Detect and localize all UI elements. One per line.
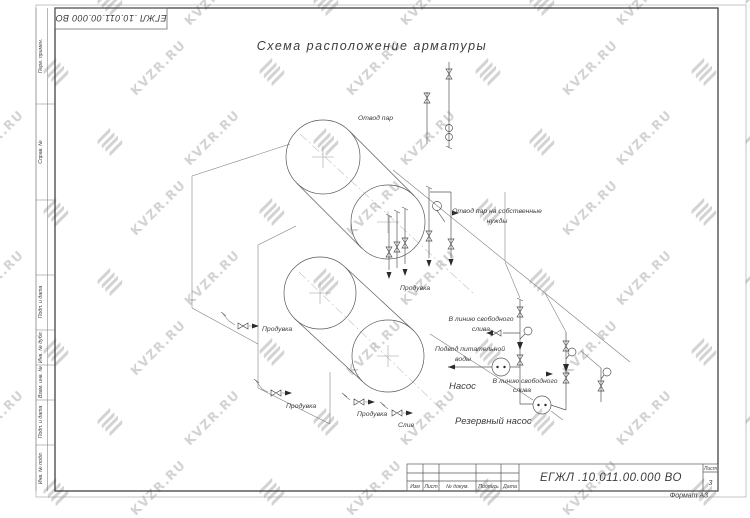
drawing-labels: Отвод пар Отвод пар на собственные нужды… [262,114,558,429]
label-blowdown-bottom1: Продувка [286,402,316,410]
stamp-label-inv-dubl: Инв. № дубл. [38,331,44,363]
sheet-borders [36,5,746,497]
stamp-label-sprav: Справ. № [38,140,44,164]
top-designation-text: ЕГЖЛ .10.011.00.000 ВО [55,13,166,23]
label-feedwater-line1: Подвод питательной [435,345,505,353]
check-valve-symbols [517,342,569,372]
stamp-label-perv-primen: Перв. примен. [38,39,44,73]
pump-symbols [492,358,551,414]
stamp-label-podp-data-1: Подп. и дата [38,286,44,319]
stamp-label-inv-podl: Инв. № подл. [38,452,44,484]
page-title: Схема расположение арматуры [257,39,488,53]
label-steam-own-needs-line2: нужды [487,217,508,225]
label-free-drain1-line1: В линию свободного [448,315,513,323]
piping-lines [221,62,601,413]
top-designation-box: ЕГЖЛ .10.011.00.000 ВО [55,8,167,29]
label-steam-out: Отвод пар [358,114,393,122]
stamp-label-vzam-inv: Взам. инв. № [38,366,44,398]
titleblock-designation: ЕГЖЛ .10.011.00.000 ВО [540,472,682,484]
title-block: Изм Лист № докум. Подпись Дата ЕГЖЛ .10.… [407,464,718,500]
boiler-drums [284,120,473,413]
drawing-canvas: Перв. примен. Справ. № Подп. и дата Инв.… [0,0,750,500]
titleblock-col-ndocum: № докум. [446,484,469,490]
label-pump: Насос [449,381,476,392]
titleblock-sheet-number: 3 [709,480,713,487]
stamp-strip: Перв. примен. Справ. № Подп. и дата Инв.… [36,8,55,491]
titleblock-sheet-label: Лист [703,466,718,472]
label-blowdown-center: Продувка [400,284,430,292]
label-blowdown-left: Продувка [262,325,292,333]
valve-symbols [238,69,604,416]
label-free-drain2-line2: слива [513,387,531,394]
titleblock-col-podpis: Подпись [478,484,499,490]
drawing-sheet: { "watermark": { "text": "KVZR.RU", "col… [0,0,750,500]
titleblock-col-izm: Изм [410,484,420,490]
label-drain: Слив [398,422,415,429]
format-label: Формат А3 [670,493,708,500]
stamp-label-podp-data-2: Подп. и дата [38,406,44,439]
label-feedwater-line2: воды [455,355,471,363]
label-blowdown-bottom2: Продувка [357,410,387,418]
label-reserve-pump: Резервный насос [455,416,532,427]
titleblock-col-data: Дата [502,484,517,490]
label-free-drain1-line2: слива [472,326,490,333]
titleblock-col-list: Лист [423,484,438,490]
pressure-gauge-symbols [433,125,612,380]
label-free-drain2-line1: В линию свободного [492,377,557,385]
label-steam-own-needs-line1: Отвод пар на собственные [452,207,542,215]
